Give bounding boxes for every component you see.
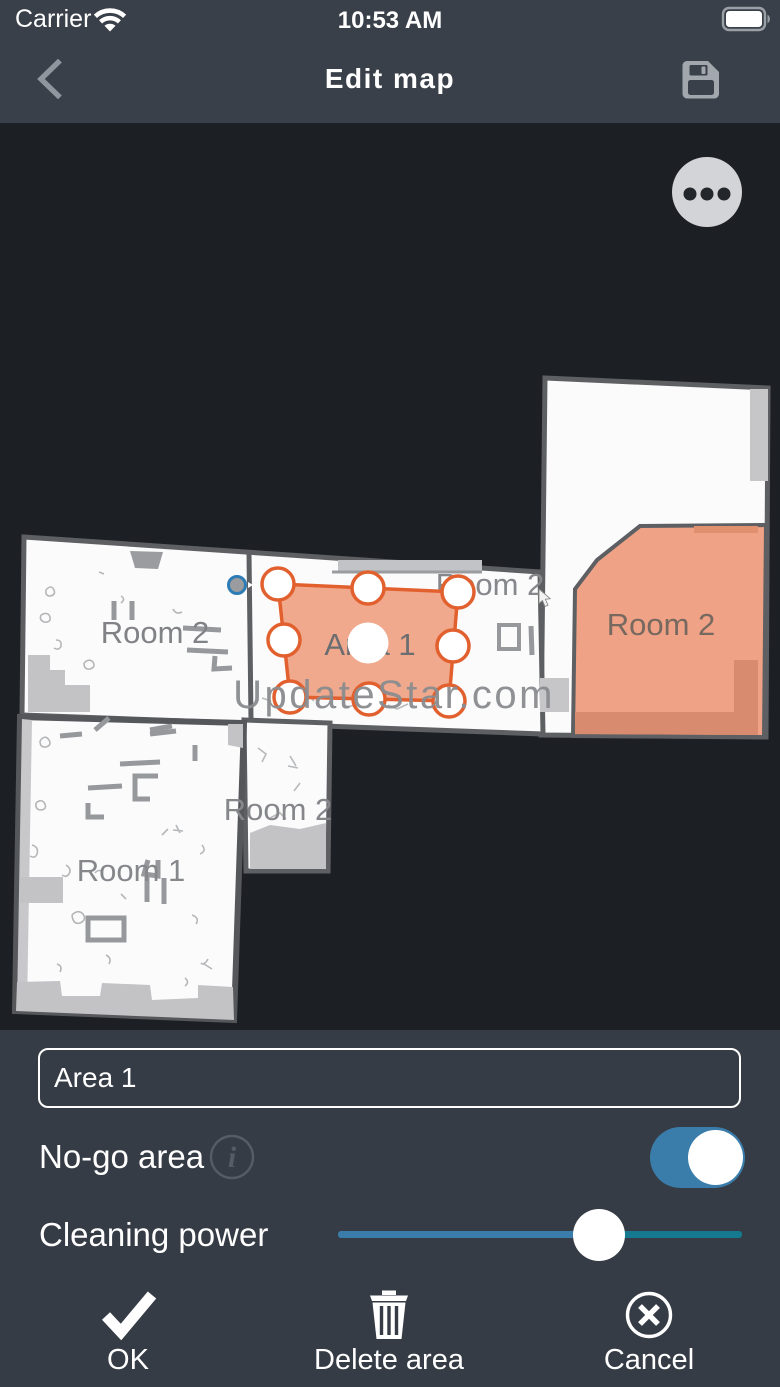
svg-text:Room 2: Room 2 <box>101 615 210 650</box>
svg-text:i: i <box>228 1141 237 1174</box>
svg-text:Room 1: Room 1 <box>77 853 186 888</box>
svg-text:Room 2: Room 2 <box>607 607 716 642</box>
svg-text:UpdateStar.com: UpdateStar.com <box>233 673 555 717</box>
svg-text:Room 2: Room 2 <box>224 792 333 827</box>
